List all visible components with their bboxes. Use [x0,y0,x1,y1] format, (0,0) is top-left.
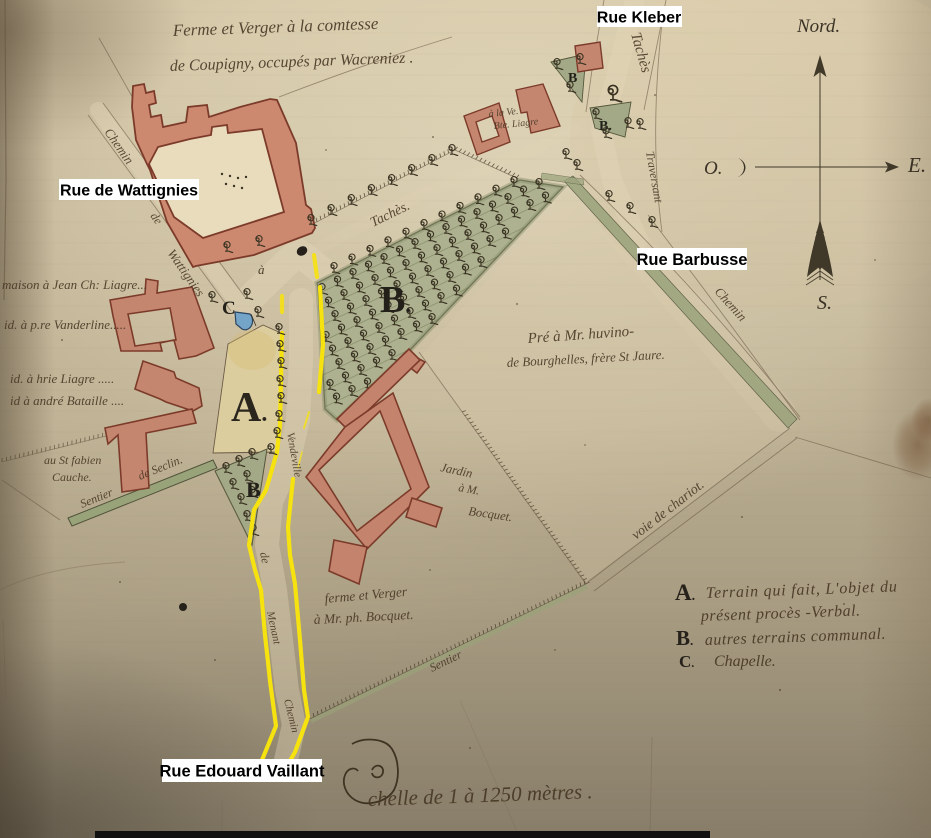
svg-text:S.: S. [817,292,832,314]
svg-text:Rue Kleber: Rue Kleber [597,10,681,27]
svg-text:C: C [222,298,236,319]
svg-text:E.: E. [907,153,926,177]
svg-text:à: à [258,262,265,277]
svg-text:id. à hrie Liagre .....: id. à hrie Liagre ..... [10,371,114,386]
svg-text:id. à p.re Vanderline.....: id. à p.re Vanderline..... [4,317,126,332]
svg-text:id à andré Bataille ....: id à andré Bataille .... [10,393,124,408]
svg-text:B.: B. [599,119,612,134]
svg-text:Rue de Wattignies: Rue de Wattignies [60,183,198,200]
svg-text:Chapelle.: Chapelle. [714,653,776,670]
svg-text:Rue Barbusse: Rue Barbusse [637,251,748,269]
svg-text:Nord.: Nord. [796,16,840,37]
svg-text:maison à Jean Ch: Liagre...: maison à Jean Ch: Liagre... [2,277,147,292]
svg-text:O.: O. [704,158,722,179]
svg-text:Rue Edouard Vaillant: Rue Edouard Vaillant [159,763,325,781]
svg-text:Cauche.: Cauche. [52,470,92,484]
svg-text:au St fabien: au St fabien [44,453,101,467]
